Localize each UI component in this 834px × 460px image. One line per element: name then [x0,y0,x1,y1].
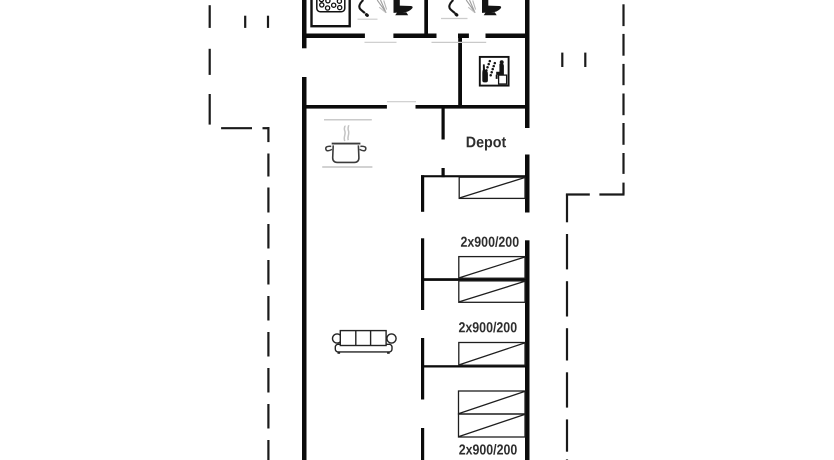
svg-text:Depot: Depot [466,134,506,151]
svg-text:2x900/200: 2x900/200 [459,442,518,458]
svg-text:2x900/200: 2x900/200 [460,235,519,251]
svg-text:2x900/200: 2x900/200 [458,320,517,336]
